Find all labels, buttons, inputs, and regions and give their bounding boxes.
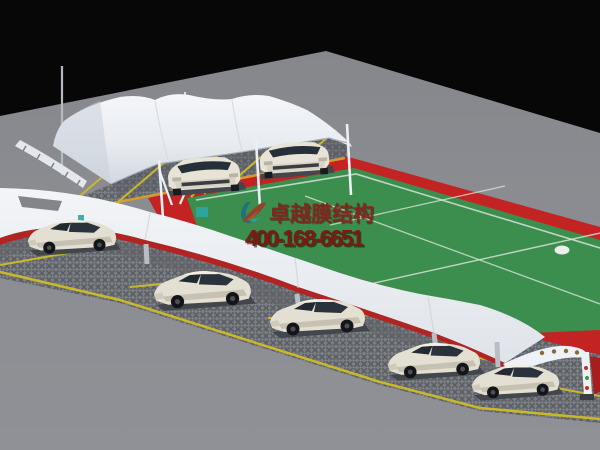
svg-text:卓越膜结构: 卓越膜结构 bbox=[269, 202, 374, 226]
svg-text:400-168-6651: 400-168-6651 bbox=[245, 225, 364, 251]
